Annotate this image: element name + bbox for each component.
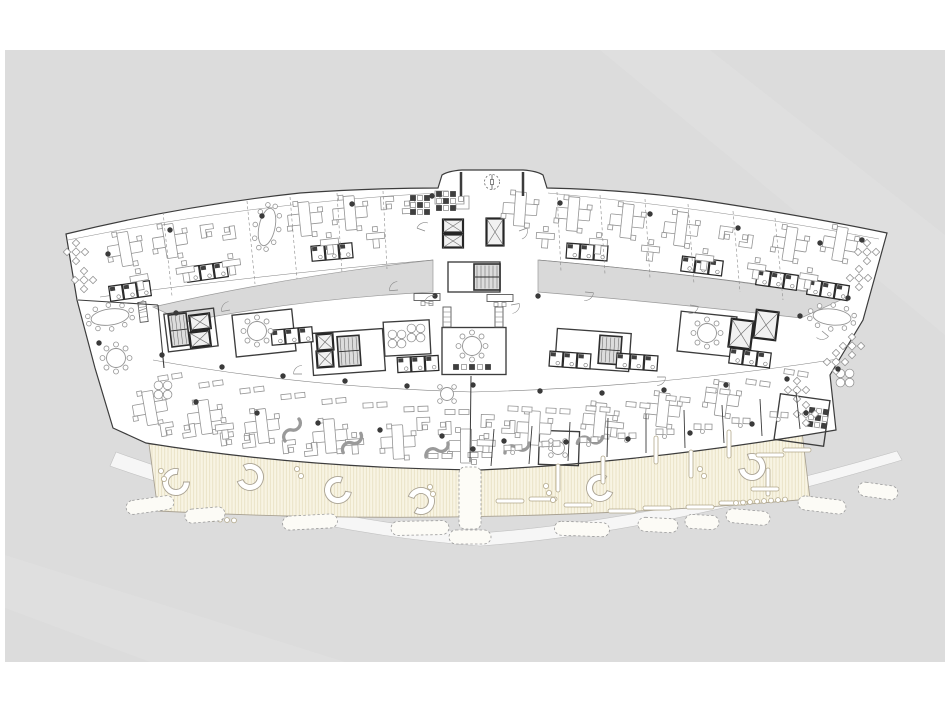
column (647, 211, 652, 216)
column (835, 366, 840, 371)
elevator (189, 330, 211, 347)
small-round-table (438, 385, 457, 404)
stool-grid (411, 196, 430, 215)
plant-pot (701, 473, 706, 478)
planter-horizontal (608, 509, 636, 513)
hedge (638, 517, 679, 533)
column (749, 421, 754, 426)
column (470, 446, 475, 451)
plant-pot (427, 484, 432, 489)
column (687, 430, 692, 435)
column (280, 373, 285, 378)
plant-pot (158, 468, 163, 473)
planter-vertical (601, 456, 605, 484)
column (599, 390, 604, 395)
column (159, 352, 164, 357)
column (193, 399, 198, 404)
elevator (443, 235, 463, 248)
elevator (443, 220, 463, 233)
shelf-unit (495, 307, 503, 327)
column (470, 382, 475, 387)
planter-horizontal (783, 448, 811, 452)
plant-pot (298, 473, 303, 478)
hedge (449, 530, 491, 544)
planter-vertical (727, 430, 731, 458)
elevator (316, 350, 333, 367)
stair (168, 313, 190, 347)
column (342, 378, 347, 383)
planter-vertical (689, 450, 693, 478)
shelf-unit (443, 307, 451, 327)
elevator (189, 313, 211, 330)
column (535, 293, 540, 298)
column (625, 436, 630, 441)
plant-pot (161, 476, 166, 481)
floor-plan (0, 0, 950, 713)
round-meeting-table (691, 317, 723, 349)
stool-grid (807, 407, 828, 428)
column (429, 193, 434, 198)
plant-pot (430, 491, 435, 496)
hedge (391, 520, 449, 535)
stool-grid (437, 192, 456, 211)
plant-pot (543, 483, 548, 488)
column (803, 410, 808, 415)
column (661, 387, 666, 392)
column (254, 410, 259, 415)
hedge (685, 514, 720, 530)
column (817, 240, 822, 245)
column (377, 427, 382, 432)
wc-room (566, 243, 608, 261)
hedge (554, 521, 609, 537)
planter-horizontal (751, 487, 779, 491)
terrace-path (459, 467, 481, 529)
hedge (184, 506, 225, 523)
column (404, 383, 409, 388)
elevator (753, 310, 778, 340)
elevator (316, 333, 333, 350)
planter-vertical (654, 436, 658, 464)
column (432, 293, 437, 298)
column (219, 364, 224, 369)
column (563, 439, 568, 444)
column (735, 225, 740, 230)
drawing-page (0, 0, 950, 713)
plant-pot (697, 466, 702, 471)
wc-room (397, 355, 439, 372)
column (105, 251, 110, 256)
column (557, 200, 562, 205)
round-meeting-table (456, 330, 488, 362)
column (723, 382, 728, 387)
wc-room (616, 353, 658, 371)
elevator (728, 319, 753, 349)
planter-horizontal (686, 505, 714, 509)
column (259, 213, 264, 218)
round-meeting-table (241, 315, 273, 347)
column (501, 438, 506, 443)
planter-horizontal (496, 499, 524, 503)
column (859, 237, 864, 242)
column (784, 376, 789, 381)
stair (337, 335, 361, 366)
hedge (282, 514, 338, 531)
planter-vertical (766, 468, 770, 496)
plant-pot (550, 497, 555, 502)
column (167, 227, 172, 232)
elevator (487, 219, 504, 246)
column (96, 340, 101, 345)
wc-room (549, 351, 591, 369)
planter-horizontal (756, 453, 784, 457)
column (349, 201, 354, 206)
planter-horizontal (564, 503, 592, 507)
wc-room (271, 327, 313, 346)
column (797, 313, 802, 318)
planter-vertical (556, 464, 560, 492)
column (845, 295, 850, 300)
stair (474, 264, 500, 290)
column (537, 388, 542, 393)
plant-pot (294, 466, 299, 471)
plant-pot (546, 490, 551, 495)
column (439, 433, 444, 438)
planter-horizontal (643, 506, 671, 510)
round-meeting-table (100, 342, 132, 374)
column (173, 310, 178, 315)
column (315, 420, 320, 425)
